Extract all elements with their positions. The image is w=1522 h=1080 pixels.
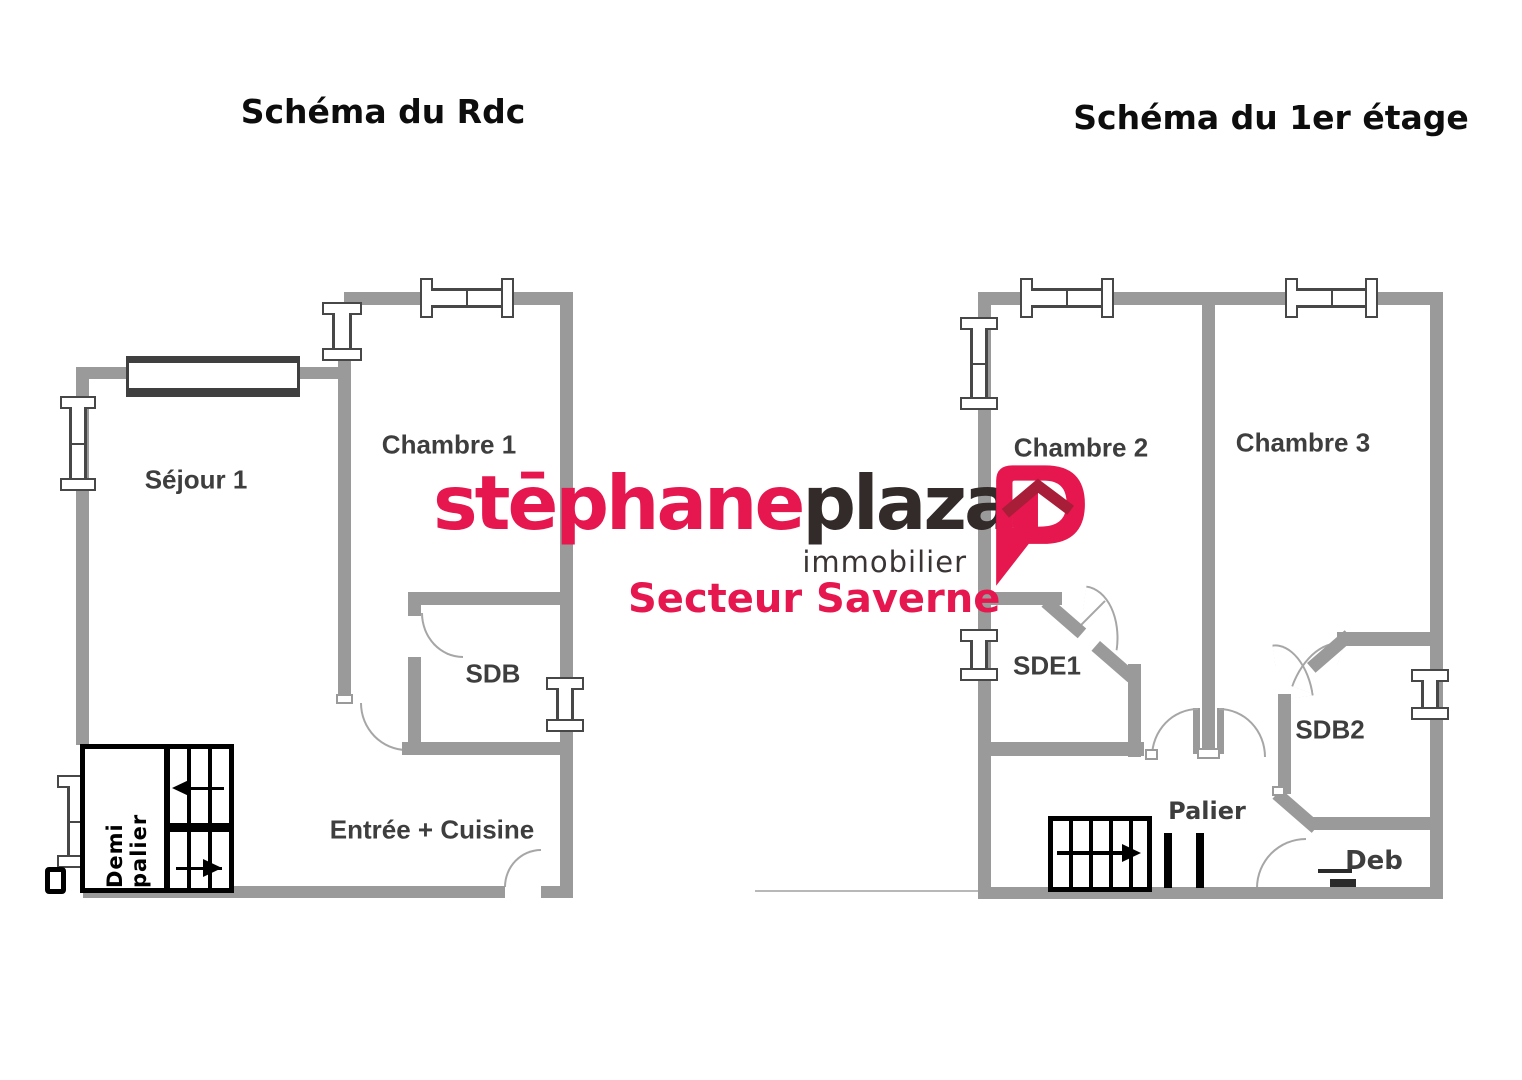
wall-chambre-divider [1202, 292, 1215, 752]
window-right [546, 677, 584, 732]
room-label-sde1: SDE1 [1013, 651, 1081, 682]
window-left-upper [960, 317, 998, 410]
first-floor-title: Schéma du 1er étage [1073, 98, 1468, 137]
wall-sdb-top [408, 592, 573, 605]
stair-arrow-head [172, 779, 191, 797]
logo-brand-second: plaza [802, 459, 1011, 547]
wall-bottom-segment [541, 886, 573, 898]
room-label-demi-palier: Demi palier [103, 752, 151, 888]
logo-wordmark: stēphaneplaza [433, 466, 1012, 541]
window-cap [1101, 278, 1114, 318]
logo-p-house-icon [988, 460, 1090, 588]
window-corner [322, 302, 362, 361]
stairs-divider [164, 744, 170, 893]
wall-end-cap [336, 694, 353, 704]
window-cap [960, 668, 998, 681]
stair-arrow-head [1122, 844, 1141, 862]
window-rung [970, 363, 988, 365]
room-label-sdb: SDB [466, 659, 521, 690]
logo-brand-first: stēphane [433, 459, 802, 547]
wall-end-cap [1272, 786, 1285, 796]
door-arc-entrance [504, 849, 541, 887]
wall-sde1-diagonal [1041, 597, 1086, 638]
window-rung [1066, 288, 1068, 307]
room-label-sejour: Séjour 1 [145, 465, 248, 496]
wall-end-cap [1145, 749, 1158, 760]
wall-top-segment [294, 367, 344, 379]
wall-sdb-bottom [402, 742, 573, 755]
window-rung [1331, 288, 1333, 307]
door-arc-deb [1256, 838, 1306, 888]
wall-end-cap [1197, 748, 1220, 759]
window-glazing [556, 688, 574, 721]
window-rung [466, 288, 468, 307]
stair-arrow-line [1057, 851, 1125, 855]
stair-tread [187, 832, 191, 888]
window-cap [60, 478, 96, 491]
window-sde1 [960, 629, 998, 681]
window-cap [1365, 278, 1378, 318]
logo-sector: Secteur Saverne [628, 576, 1000, 622]
window-cap [546, 719, 584, 732]
wall-sde1-bottom [982, 742, 1144, 756]
door-threshold-box [45, 867, 66, 894]
wall-sejour-divider [338, 357, 351, 703]
wall-right [1430, 292, 1443, 899]
window-glazing [332, 313, 351, 350]
window-cap [1411, 707, 1449, 720]
door-arc-sejour [360, 703, 407, 751]
room-label-chambre2: Chambre 2 [1014, 433, 1148, 464]
room-label-entree-cuisine: Entrée + Cuisine [330, 815, 534, 846]
window-cap [960, 397, 998, 410]
window-cap [322, 348, 362, 361]
window-sdb2 [1411, 669, 1449, 720]
stair-arrow-head [203, 859, 222, 877]
wall-sdb-left [408, 657, 421, 749]
room-label-deb: Deb [1345, 846, 1403, 876]
window-cap [501, 278, 514, 318]
wall-deb-top [1313, 817, 1431, 830]
wall-sdb2-left [1278, 694, 1291, 794]
door-arc-sdb [421, 613, 463, 658]
window-chambre1-top [420, 278, 514, 318]
stair-railing-post [1196, 833, 1204, 888]
stair-tread [208, 749, 212, 823]
window-rung [69, 443, 86, 445]
cut-off-text-mark [1330, 879, 1356, 887]
baseline-extension [755, 890, 980, 892]
wall-top-segment [76, 367, 132, 379]
ground-floor-title: Schéma du Rdc [241, 92, 526, 131]
window-chambre2-top [1020, 278, 1114, 318]
room-label-palier: Palier [1168, 797, 1246, 825]
floorplan-canvas: Schéma du Rdc Schéma du 1er étage [0, 0, 1522, 1080]
wall-sdb-left [408, 600, 421, 616]
room-label-sdb2: SDB2 [1295, 715, 1364, 746]
room-label-chambre1: Chambre 1 [382, 430, 516, 461]
stair-railing-post [1164, 833, 1172, 888]
stairs-landing-divider [164, 823, 234, 832]
window-left-upper [60, 396, 96, 491]
window-sejour-long [126, 356, 300, 397]
window-chambre3-top [1285, 278, 1378, 318]
door-arc-chambre3 [1219, 708, 1266, 757]
window-glazing [970, 640, 988, 670]
door-arc-chambre2 [1151, 708, 1198, 757]
room-label-chambre3: Chambre 3 [1236, 428, 1370, 459]
window-glazing [1421, 680, 1439, 709]
logo-subtitle: immobilier [703, 545, 967, 579]
